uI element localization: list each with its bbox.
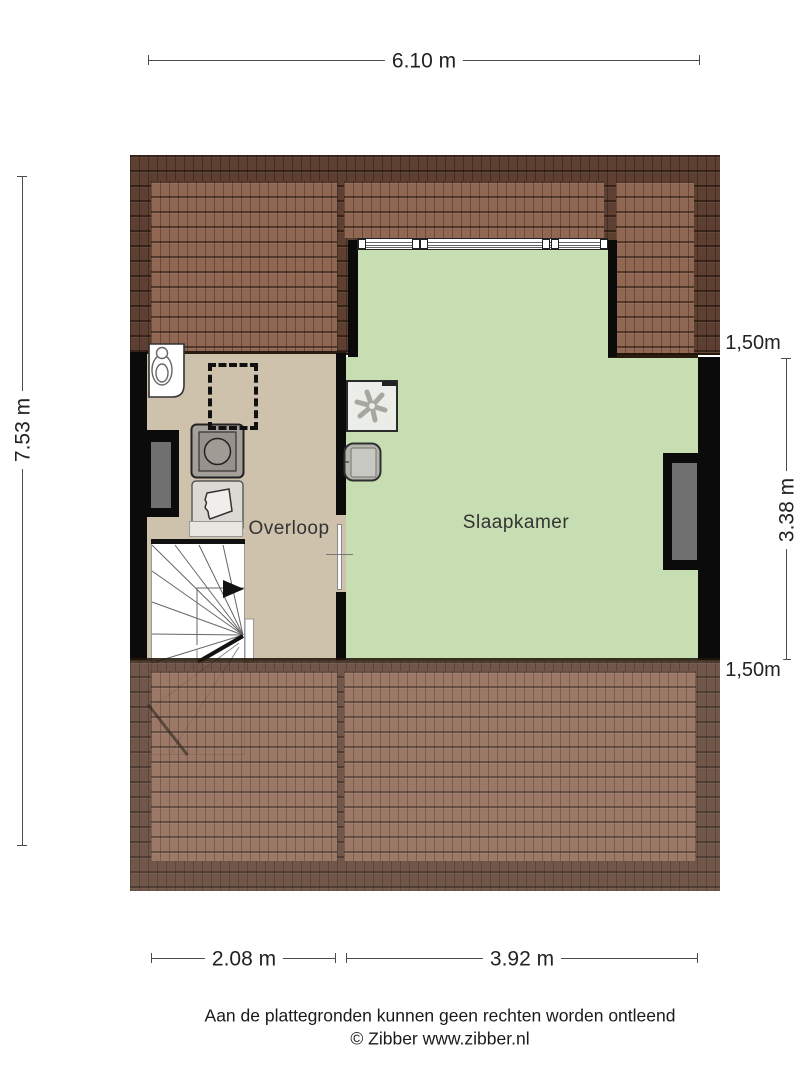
dim-left-tick-top: [17, 176, 27, 177]
dormer-window-mullion: [358, 239, 366, 249]
side-window-left-pane: [151, 442, 171, 508]
dim-left-tick-bottom: [17, 845, 27, 846]
dim-bottom-right-label: 3.92 m: [483, 947, 561, 970]
dim-bottom-tick-3: [346, 953, 347, 963]
roof-bottom: [130, 658, 720, 891]
dormer-window-mullion: [420, 239, 428, 249]
dim-left-line: [22, 176, 23, 846]
wall-unit-icon: [343, 442, 382, 482]
door-threshold-line: [326, 554, 353, 555]
dim-bottom-left-label: 2.08 m: [205, 947, 283, 970]
dim-right-middle-label: 3.38 m: [775, 471, 798, 549]
dormer-window-glass-line: [360, 247, 605, 248]
dormer-window-mullion: [412, 239, 420, 249]
roof-top-panel-left: [151, 181, 337, 353]
wall-dormer-stub-right: [608, 240, 617, 357]
wall-partition-upper: [336, 353, 346, 515]
dim-left-label: 7.53 m: [11, 391, 34, 469]
dormer-window-mullion: [600, 239, 608, 249]
dim-right-top-label: 1,50m: [723, 332, 783, 354]
footer-disclaimer: Aan de plattegronden kunnen geen rechten…: [205, 1006, 676, 1027]
side-window-right-pane: [672, 463, 697, 560]
dim-top-tick-left: [148, 55, 149, 65]
dormer-window-mullion: [551, 239, 559, 249]
dim-bottom-tick-4: [697, 953, 698, 963]
roof-bottom-panel-left: [151, 671, 337, 861]
floorplan-canvas: 6.10 m 7.53 m 1,50m 3.38 m 1,50m 2.08 m …: [0, 0, 809, 1080]
dim-right-tick-top: [781, 358, 791, 359]
wall-right: [698, 357, 720, 660]
dim-bottom-tick-1: [151, 953, 152, 963]
dim-top-label: 6.10 m: [385, 49, 463, 72]
roof-top-panel-right: [616, 181, 694, 353]
door-leaf: [337, 524, 342, 590]
stair-cupboard: [189, 521, 243, 537]
dormer-window-glass-line: [360, 242, 605, 243]
wall-partition-lower: [336, 592, 346, 660]
dormer-window-mullion: [542, 239, 550, 249]
washing-machine-icon: [190, 423, 245, 479]
wall-dormer-stub-left: [348, 240, 358, 357]
room-label-slaapkamer: Slaapkamer: [463, 512, 569, 534]
slaapkamer-floor-main: [346, 357, 698, 660]
boiler-icon: [148, 343, 185, 398]
dim-top-tick-right: [699, 55, 700, 65]
wall-edge-right-top: [608, 355, 698, 358]
dormer-window-glass-line: [360, 245, 605, 246]
dim-bottom-tick-2: [335, 953, 336, 963]
dormer-window: [357, 238, 608, 250]
slaapkamer-floor-dormer: [357, 249, 608, 357]
roof-top-panel-dormer: [344, 181, 604, 238]
room-label-overloop: Overloop: [248, 518, 329, 540]
mechanical-ventilation-icon: [346, 380, 398, 432]
dim-right-bottom-label: 1,50m: [723, 659, 783, 681]
footer-copyright: © Zibber www.zibber.nl: [350, 1029, 529, 1050]
skylight-outline-icon: [208, 363, 258, 430]
roof-bottom-panel-right: [344, 671, 696, 861]
